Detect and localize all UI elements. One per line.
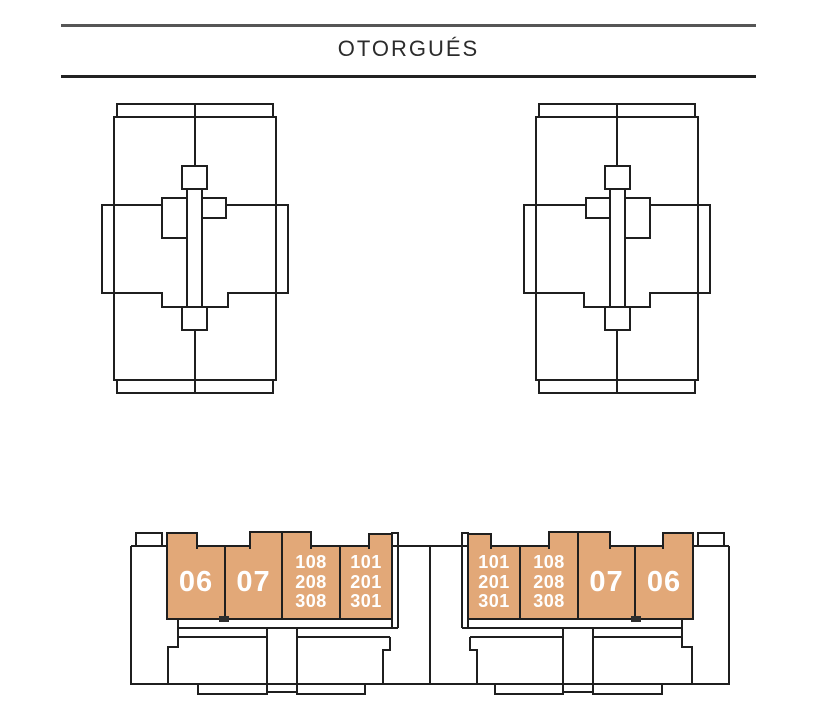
unit-left-101-201-301[interactable]: 101 201 301 — [340, 546, 392, 619]
unit-right-108-208-308[interactable]: 108 208 308 — [520, 546, 578, 619]
site-plan: OTORGUÉS — [0, 0, 838, 716]
unit-left-07[interactable]: 07 — [225, 546, 282, 619]
tower-left-outline — [102, 104, 288, 393]
unit-left-108-208-308[interactable]: 108 208 308 — [282, 546, 340, 619]
unit-left-06[interactable]: 06 — [167, 546, 225, 619]
plan-drawing — [0, 0, 838, 716]
unit-right-101-201-301[interactable]: 101 201 301 — [468, 546, 520, 619]
unit-right-06[interactable]: 06 — [635, 546, 693, 619]
unit-right-07[interactable]: 07 — [578, 546, 635, 619]
tower-right-outline — [524, 104, 710, 393]
